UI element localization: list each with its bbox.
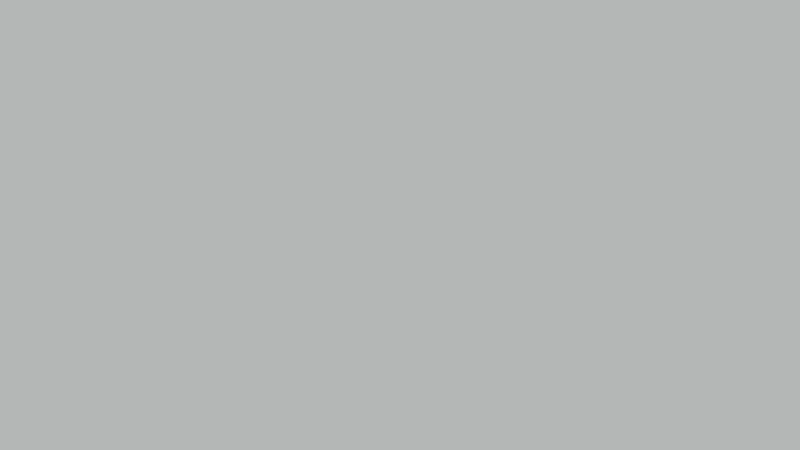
aerial-photo-industrial-campus <box>0 0 800 450</box>
